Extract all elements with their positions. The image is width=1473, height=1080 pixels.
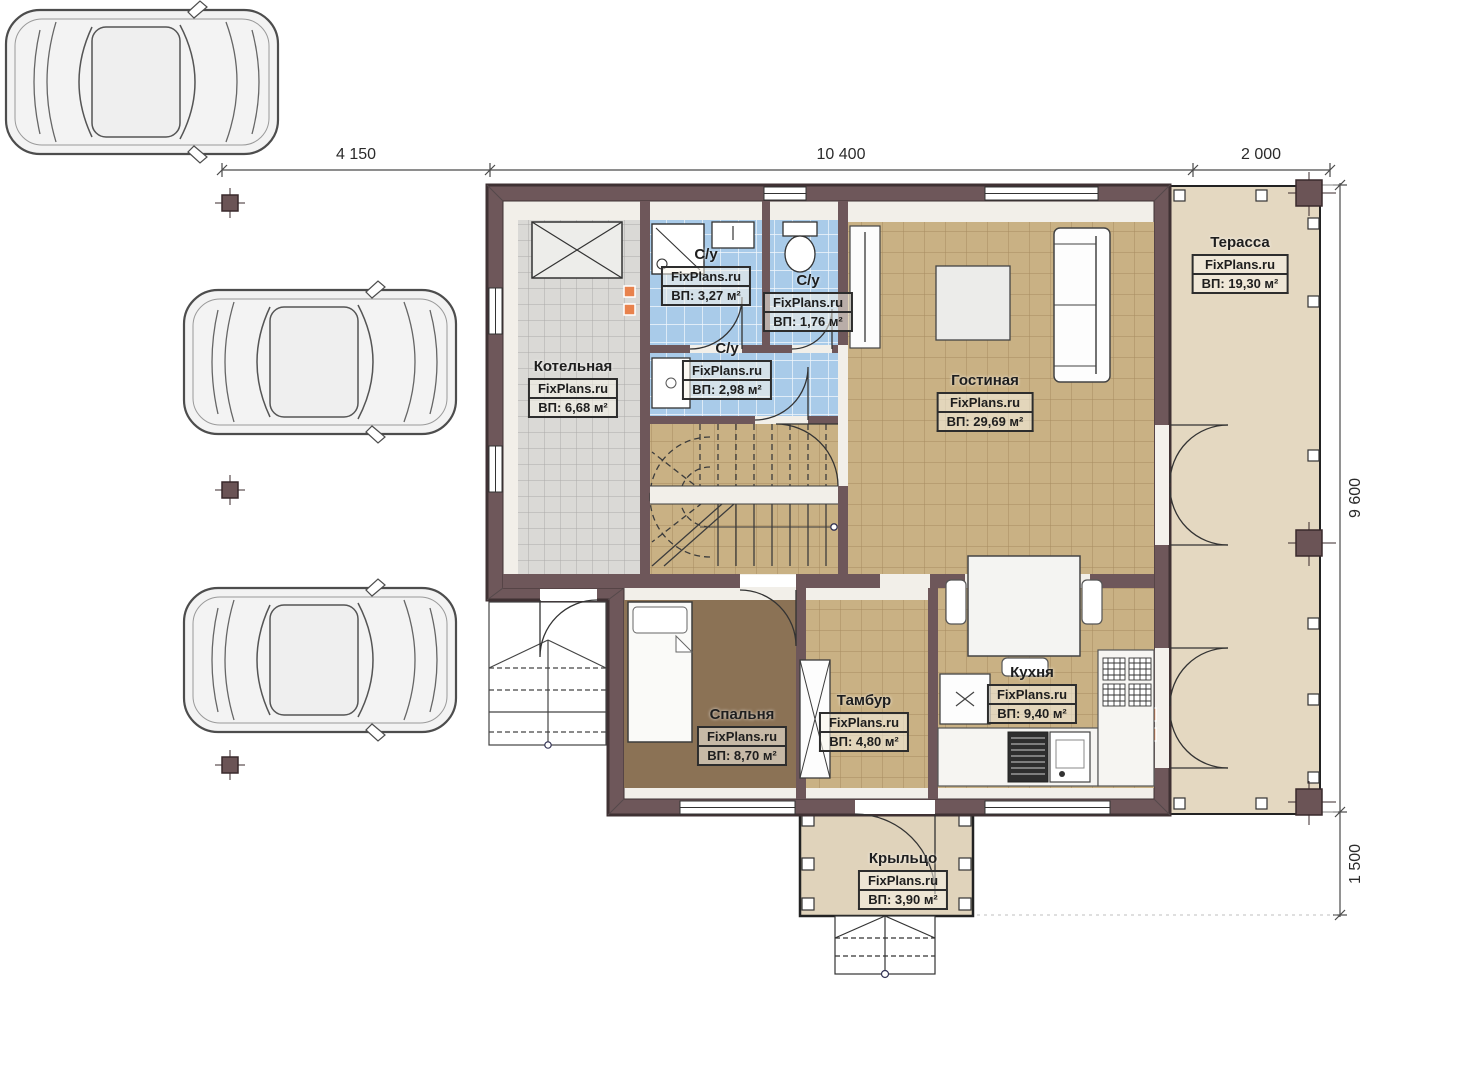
kitchen-sink bbox=[1050, 732, 1090, 782]
site-post bbox=[215, 188, 245, 218]
room-label-tambour: Тамбур FixPlans.ru ВП: 4,80 м² bbox=[819, 692, 909, 752]
room-label-porch: Крыльцо FixPlans.ru ВП: 3,90 м² bbox=[858, 850, 948, 910]
room-label-bathroom1: С/у FixPlans.ru ВП: 3,27 м² bbox=[661, 246, 751, 306]
room-name: Тамбур bbox=[819, 692, 909, 709]
vent-shaft bbox=[532, 222, 622, 278]
room-area: ВП: 29,69 м² bbox=[937, 413, 1034, 432]
dim-top-left: 4 150 bbox=[336, 146, 376, 164]
room-label-kitchen: Кухня FixPlans.ru ВП: 9,40 м² bbox=[987, 664, 1077, 724]
coffee-table bbox=[936, 266, 1010, 340]
porch-door-opening bbox=[855, 800, 935, 814]
room-area: ВП: 9,40 м² bbox=[987, 705, 1077, 724]
room-area: ВП: 3,90 м² bbox=[858, 891, 948, 910]
site-post bbox=[215, 750, 245, 780]
room-brand: FixPlans.ru bbox=[819, 712, 909, 733]
room-brand: FixPlans.ru bbox=[937, 392, 1034, 413]
room-area: ВП: 2,98 м² bbox=[682, 381, 772, 400]
car-1 bbox=[184, 281, 456, 443]
room-name: С/у bbox=[682, 340, 772, 357]
room-label-living: Гостиная FixPlans.ru ВП: 29,69 м² bbox=[937, 372, 1034, 432]
room-brand: FixPlans.ru bbox=[697, 726, 787, 747]
side-landing-steps bbox=[489, 602, 606, 748]
toilet bbox=[783, 222, 817, 272]
site-post bbox=[215, 475, 245, 505]
sofa bbox=[1054, 228, 1110, 382]
room-area: ВП: 3,27 м² bbox=[661, 287, 751, 306]
room-name: Терасса bbox=[1192, 234, 1289, 251]
room-brand: FixPlans.ru bbox=[661, 266, 751, 287]
room-name: Кухня bbox=[987, 664, 1077, 681]
room-label-boiler: Котельная FixPlans.ru ВП: 6,68 м² bbox=[528, 358, 618, 418]
room-brand: FixPlans.ru bbox=[682, 360, 772, 381]
room-label-bedroom: Спальня FixPlans.ru ВП: 8,70 м² bbox=[697, 706, 787, 766]
room-brand: FixPlans.ru bbox=[987, 684, 1077, 705]
terrace-door-opening-1 bbox=[1155, 425, 1169, 545]
dishwasher bbox=[1008, 732, 1048, 782]
room-area: ВП: 4,80 м² bbox=[819, 733, 909, 752]
dim-right-upper: 9 600 bbox=[1347, 478, 1365, 518]
room-brand: FixPlans.ru bbox=[763, 292, 853, 313]
bed bbox=[628, 602, 692, 742]
room-name: С/у bbox=[661, 246, 751, 263]
dim-top-middle: 10 400 bbox=[817, 146, 866, 164]
room-name: Крыльцо bbox=[858, 850, 948, 867]
room-brand: FixPlans.ru bbox=[858, 870, 948, 891]
room-area: ВП: 19,30 м² bbox=[1192, 275, 1289, 294]
floor-plan-page: 4 150 10 400 2 000 9 600 1 500 Котельная… bbox=[0, 0, 1473, 1080]
room-label-bathroom2: С/у FixPlans.ru ВП: 1,76 м² bbox=[763, 272, 853, 332]
dim-right-lower: 1 500 bbox=[1347, 844, 1365, 884]
room-brand: FixPlans.ru bbox=[528, 378, 618, 399]
room-name: Котельная bbox=[528, 358, 618, 375]
side-door-opening bbox=[540, 589, 597, 601]
room-area: ВП: 8,70 м² bbox=[697, 747, 787, 766]
room-name: Спальня bbox=[697, 706, 787, 723]
room-brand: FixPlans.ru bbox=[1192, 254, 1289, 275]
car-2 bbox=[184, 579, 456, 741]
room-name: Гостиная bbox=[937, 372, 1034, 389]
room-label-terrace: Терасса FixPlans.ru ВП: 19,30 м² bbox=[1192, 234, 1289, 294]
bathroom-sink bbox=[712, 222, 754, 248]
bedroom-door-opening bbox=[740, 575, 796, 587]
porch-steps bbox=[835, 916, 935, 978]
room-label-bathroom3: С/у FixPlans.ru ВП: 2,98 м² bbox=[682, 340, 772, 400]
room-area: ВП: 6,68 м² bbox=[528, 399, 618, 418]
kitchen-appliance bbox=[940, 674, 990, 724]
terrace-door-opening-2 bbox=[1155, 648, 1169, 768]
car-top-view bbox=[6, 1, 278, 163]
tv-cabinet bbox=[850, 226, 880, 348]
room-name: С/у bbox=[763, 272, 853, 289]
room-area: ВП: 1,76 м² bbox=[763, 313, 853, 332]
dim-top-right: 2 000 bbox=[1241, 146, 1281, 164]
